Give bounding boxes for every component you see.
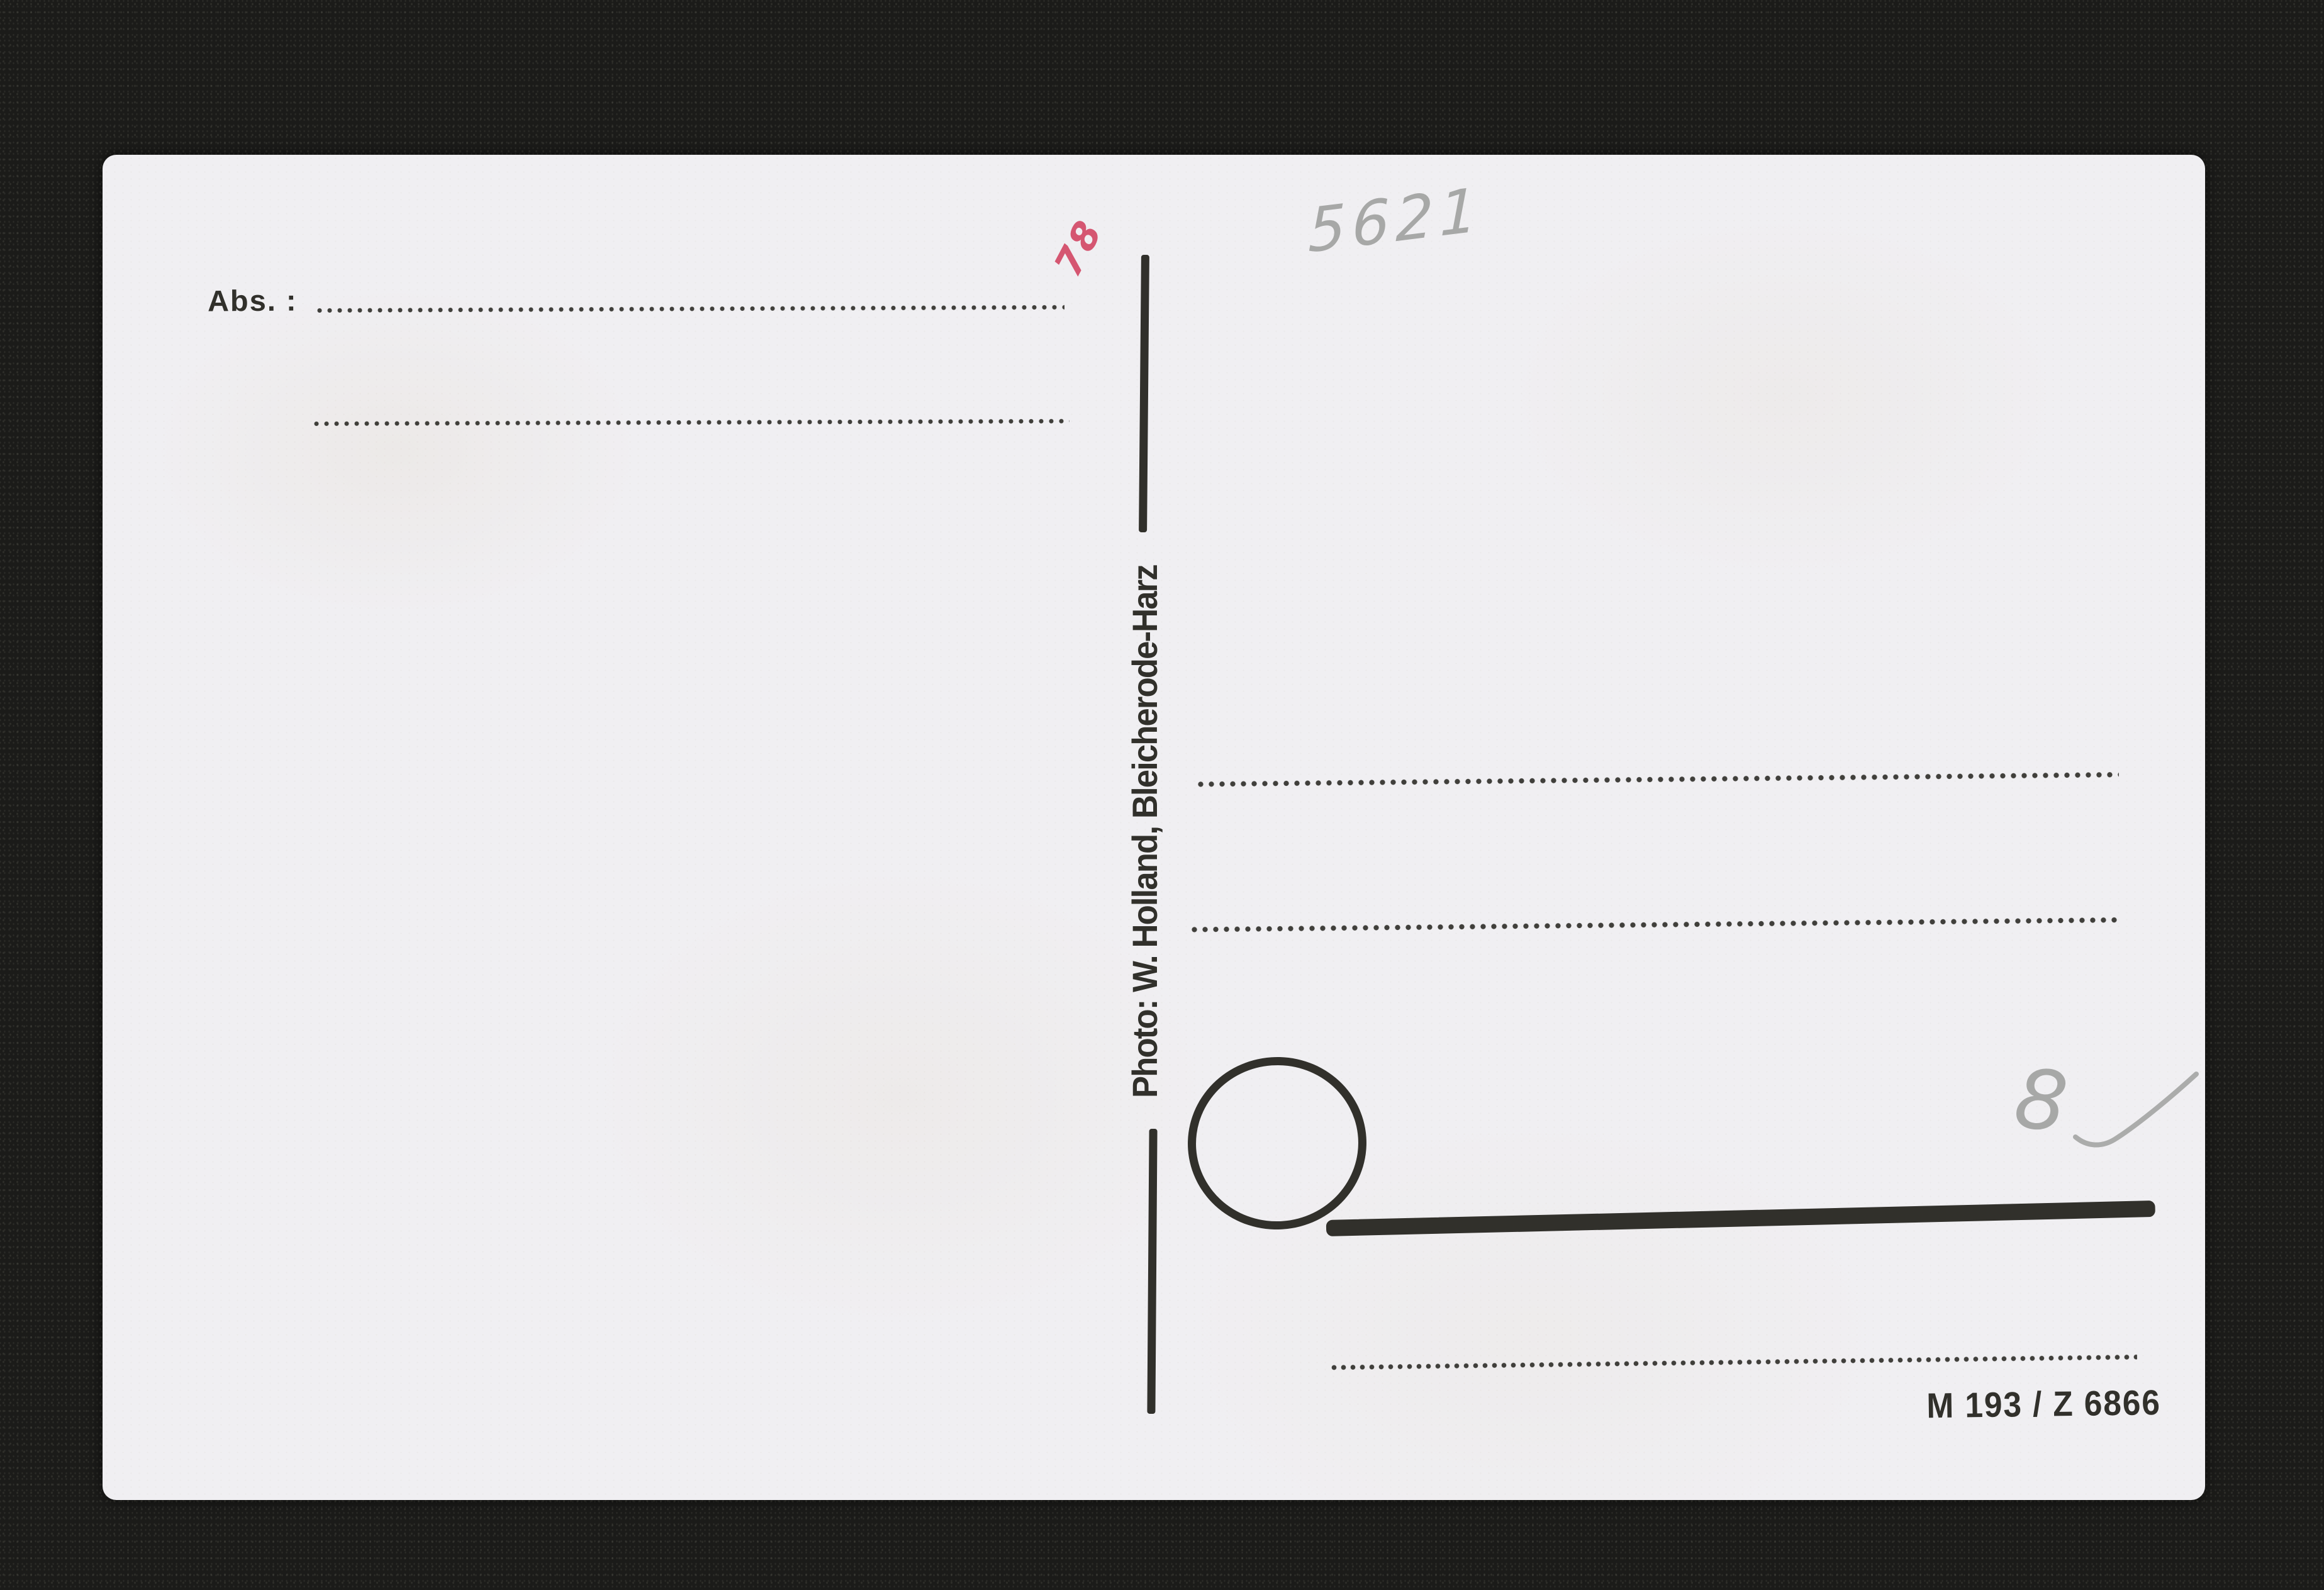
sender-dotted-line-2	[311, 418, 1070, 427]
stamp-circle	[1182, 1051, 1372, 1235]
address-dotted-line-3	[1329, 1354, 2137, 1370]
red-ink-annotation: 78	[1046, 191, 1124, 284]
postcard-back: Abs. : 78 5621 Photo: W. Holland, Bleich…	[103, 155, 2205, 1500]
address-dotted-line-2	[1189, 917, 2119, 932]
divider-top-segment	[1139, 255, 1149, 532]
address-dotted-line-1	[1195, 772, 2119, 787]
pencil-price-dash-stroke	[2047, 1051, 2223, 1152]
divider-bottom-segment	[1147, 1129, 1157, 1414]
pencil-number-annotation: 5621	[1308, 177, 1483, 266]
photographer-credit: Photo: W. Holland, Bleicherode-Harz	[1120, 566, 1170, 1098]
sender-dotted-line-1	[315, 305, 1064, 313]
address-thick-underline	[1326, 1201, 2155, 1236]
sender-label: Abs. :	[208, 283, 298, 318]
printer-code: M 193 / Z 6866	[1926, 1382, 2161, 1426]
